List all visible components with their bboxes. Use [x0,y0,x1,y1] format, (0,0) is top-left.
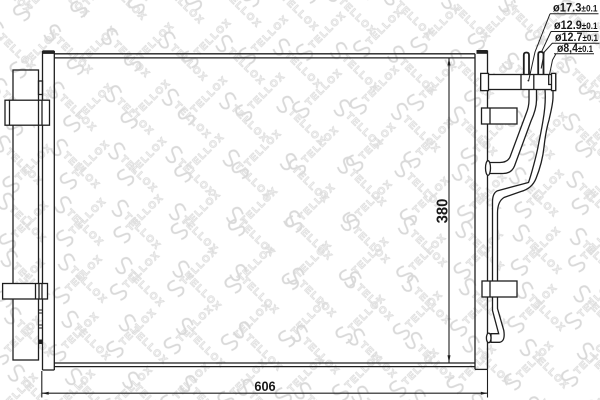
svg-text:ø17.3±0.1: ø17.3±0.1 [553,1,598,15]
svg-text:606: 606 [254,379,276,394]
svg-text:ø8,4±0.1: ø8,4±0.1 [557,41,593,55]
svg-text:380: 380 [435,198,452,223]
